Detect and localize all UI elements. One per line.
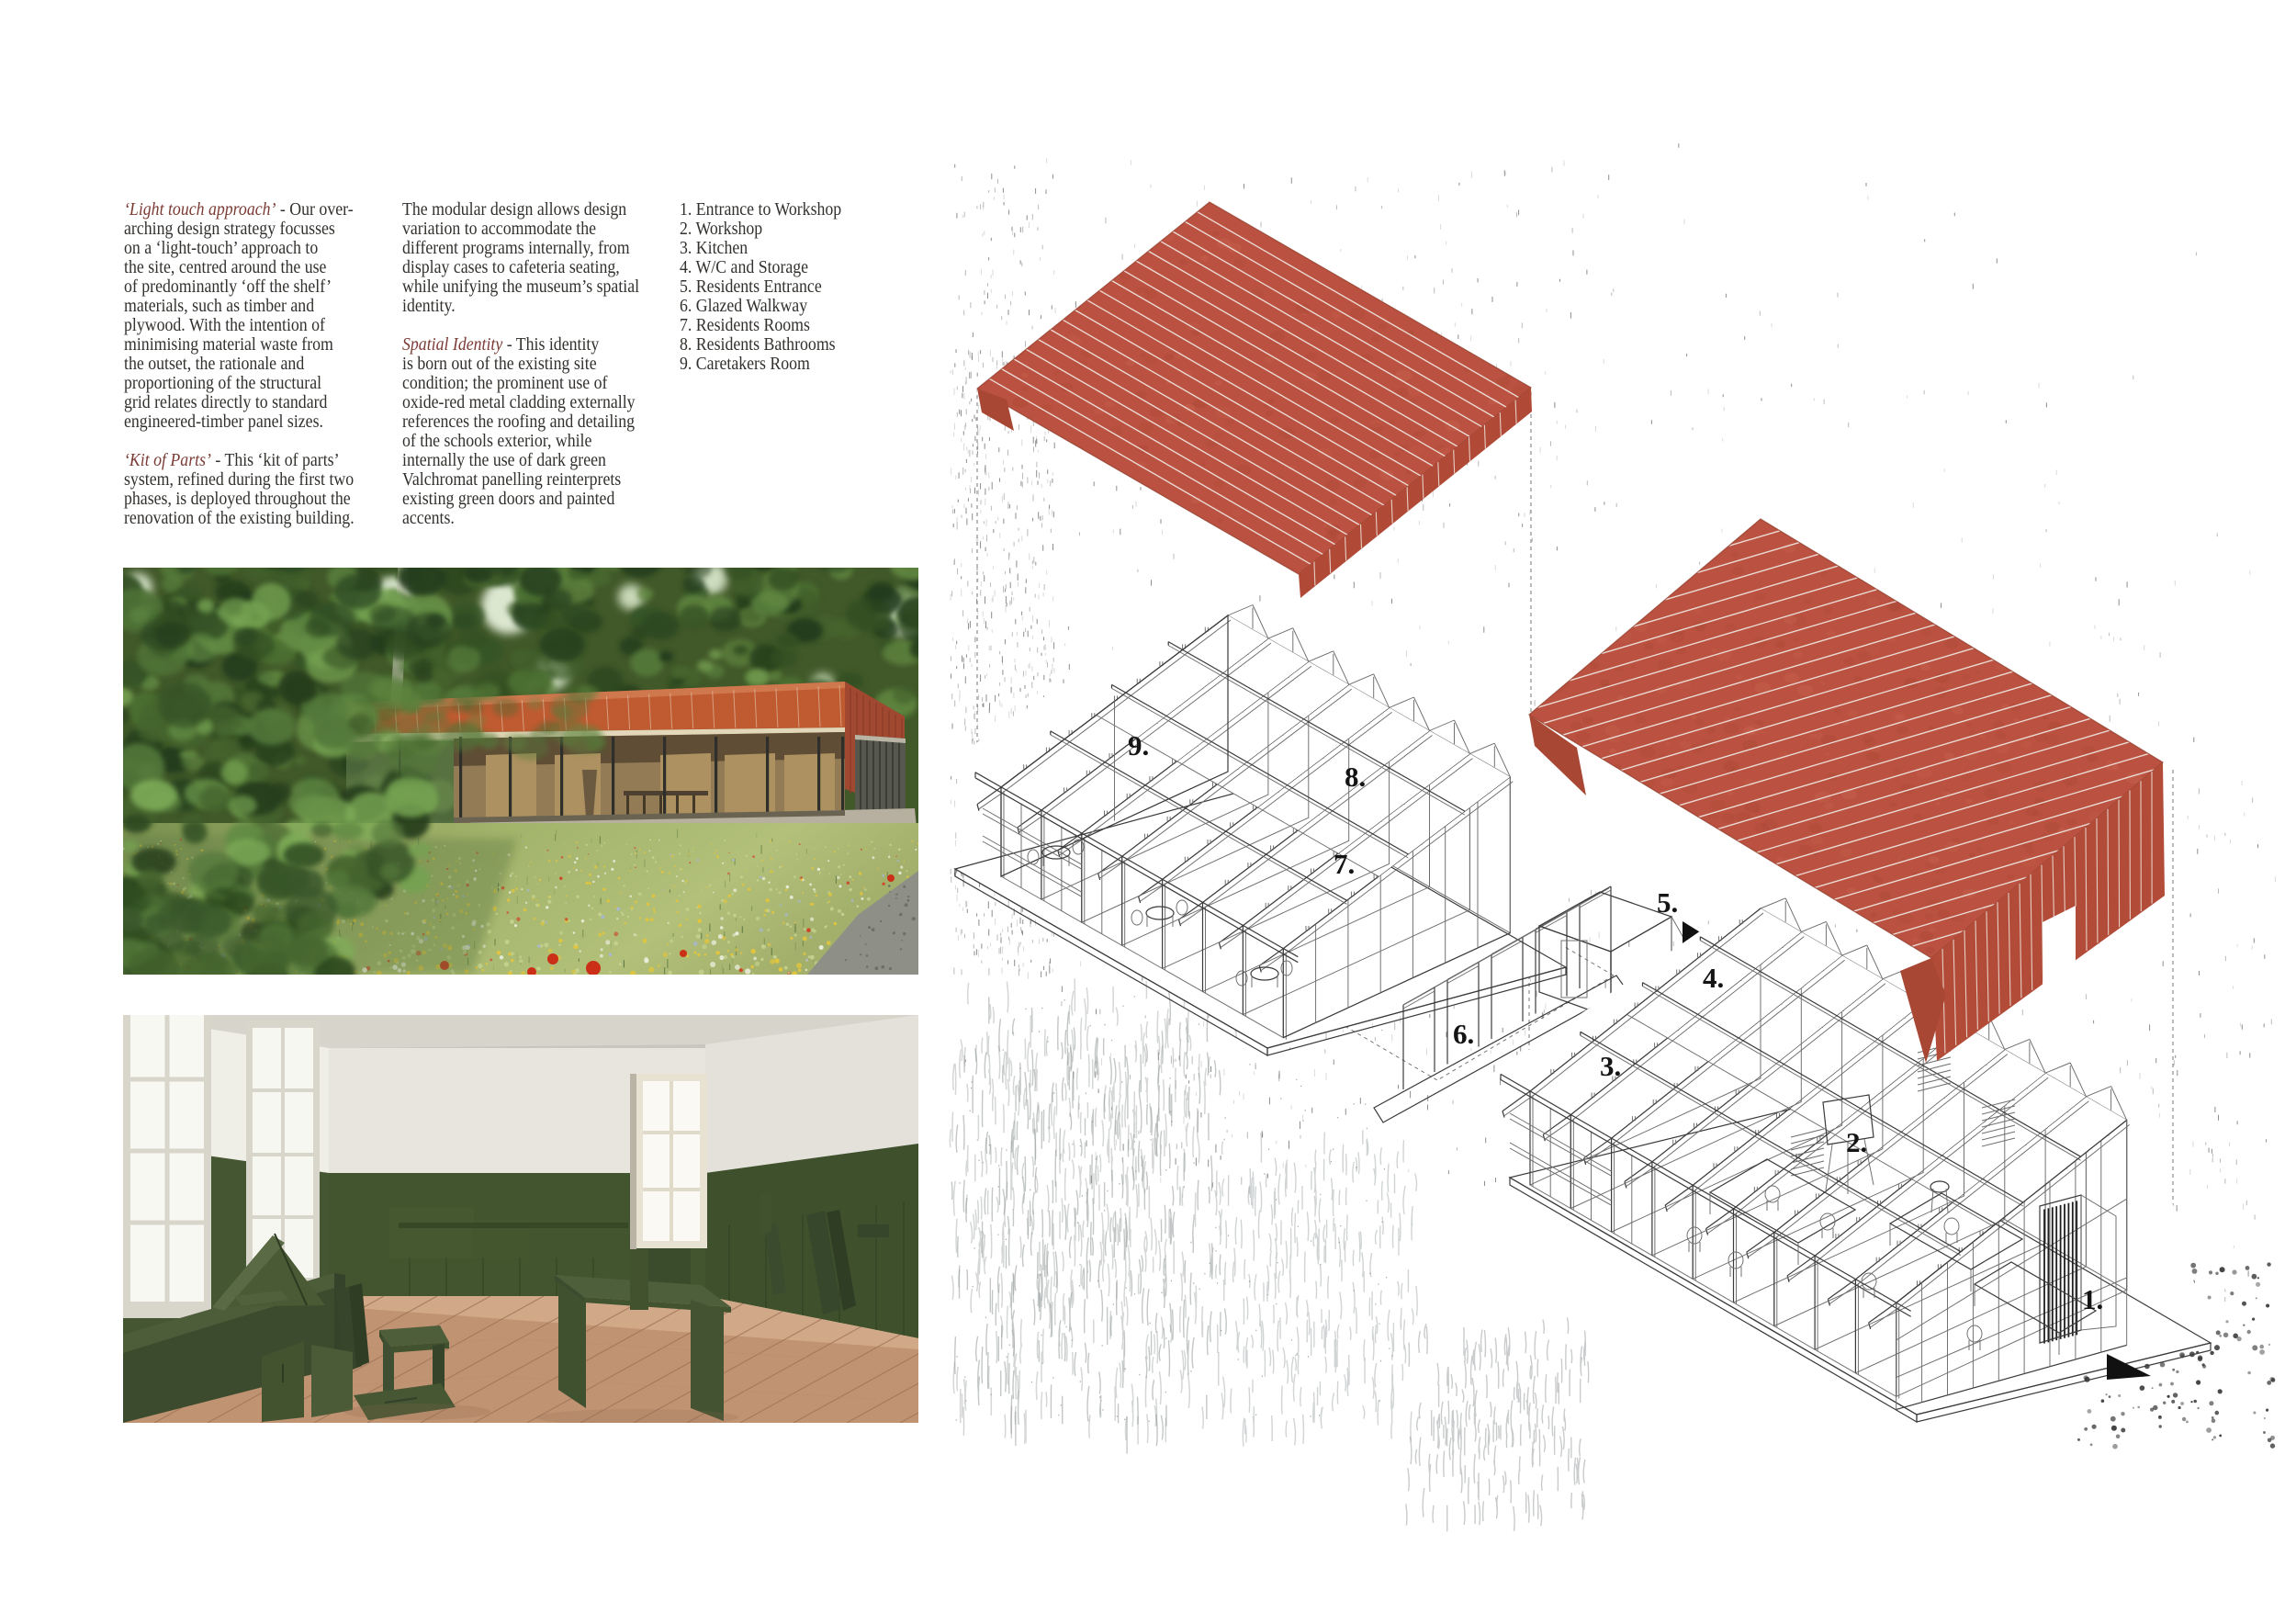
svg-text:9.: 9. <box>1128 729 1149 761</box>
svg-text:3.: 3. <box>1600 1050 1621 1082</box>
svg-text:4.: 4. <box>1703 962 1724 994</box>
svg-text:6.: 6. <box>1453 1018 1474 1050</box>
svg-text:2.: 2. <box>1846 1126 1867 1158</box>
svg-text:5.: 5. <box>1657 886 1678 919</box>
svg-text:1.: 1. <box>2082 1283 2103 1315</box>
svg-text:8.: 8. <box>1345 761 1366 793</box>
svg-text:7.: 7. <box>1334 848 1355 880</box>
